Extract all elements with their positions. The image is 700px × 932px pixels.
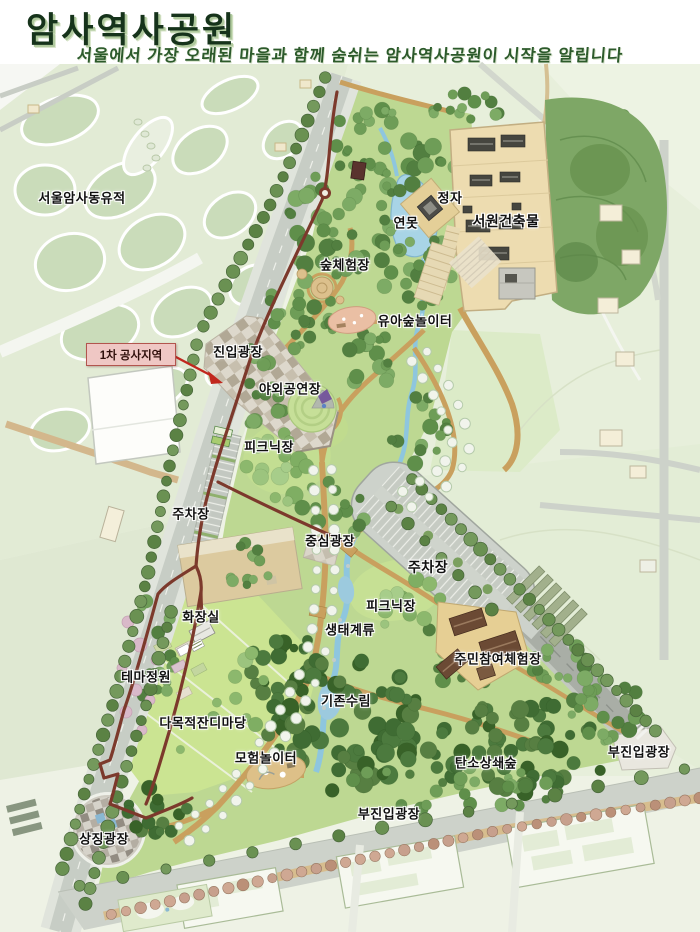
label-seoul-amsadong-site: 서울암사동유적 (38, 188, 125, 207)
label-symbol-plaza: 상징광장 (79, 829, 129, 848)
label-pavilion: 정자 (438, 188, 463, 207)
park-masterplan-page: 암사역사공원 서울에서 가장 오래된 마을과 함께 숨쉬는 암사역사공원이 시작… (0, 0, 700, 932)
label-sub-entry-plaza-south: 부진입광장 (358, 804, 420, 823)
construction-area-callout: 1차 공사지역 (86, 343, 176, 366)
label-entry-plaza: 진입광장 (213, 342, 263, 361)
label-parking-west: 주차장 (172, 504, 209, 523)
white-yard (88, 366, 180, 464)
label-multipurpose-lawn: 다목적잔디마당 (159, 713, 246, 732)
label-adventure-playground: 모험놀이터 (235, 748, 297, 767)
page-subtitle-wrap: 서울에서 가장 오래된 마을과 함께 숨쉬는 암사역사공원이 시작을 알립니다 (0, 42, 700, 66)
label-parking-east: 주차장 (408, 557, 448, 577)
label-toddler-forest-playground: 유아숲놀이터 (378, 311, 453, 330)
label-outdoor-stage: 야외공연장 (259, 379, 321, 398)
page-subtitle: 서울에서 가장 오래된 마을과 함께 숨쉬는 암사역사공원이 시작을 알립니다 (76, 42, 624, 66)
label-existing-forest: 기존수림 (321, 691, 371, 710)
label-picnic-area-east: 피크닉장 (366, 596, 416, 615)
label-restroom: 화장실 (182, 607, 219, 626)
label-forest-experience: 숲체험장 (320, 255, 370, 274)
label-carbon-offset-forest: 탄소상쇄숲 (455, 753, 517, 772)
label-theme-garden: 테마정원 (121, 667, 171, 686)
label-resident-experience: 주민참여체험장 (454, 649, 541, 668)
label-sub-entry-plaza-east: 부진입광장 (608, 742, 670, 761)
park-map-illustration (0, 0, 700, 932)
label-eco-stream: 생태계류 (325, 620, 375, 639)
label-seowon-buildings: 서원건축물 (473, 211, 540, 231)
label-central-plaza: 중심광장 (305, 531, 355, 550)
label-pond: 연못 (394, 213, 419, 232)
label-picnic-area-west: 피크닉장 (244, 437, 294, 456)
memorial-structure (351, 161, 366, 180)
